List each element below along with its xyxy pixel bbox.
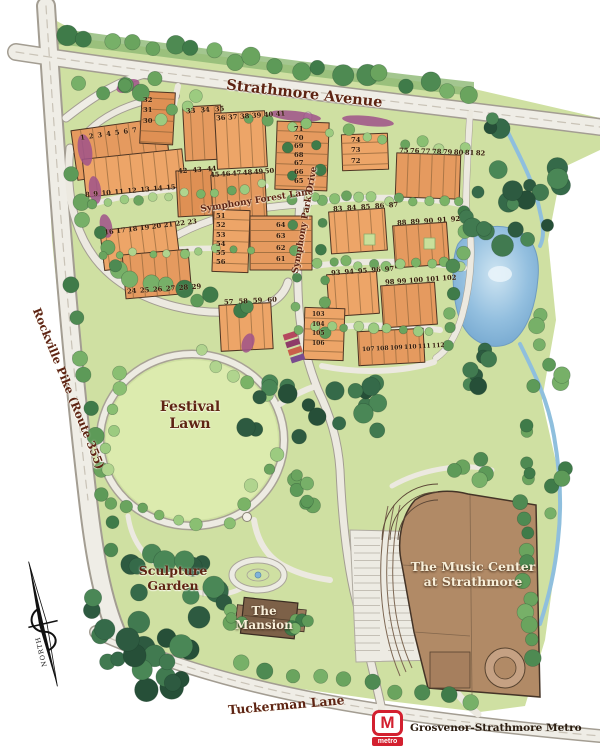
lot-number: 104 bbox=[312, 322, 325, 328]
lot-number: 20 bbox=[151, 223, 161, 231]
lot-number: 93 bbox=[331, 270, 341, 277]
lot-number: 71 bbox=[294, 126, 303, 133]
lot-number: 101 bbox=[425, 276, 440, 284]
lot-number: 7 bbox=[132, 127, 138, 134]
lot-group-51-56: 515253545556 bbox=[216, 213, 225, 266]
metro-logo-word: metro bbox=[372, 737, 403, 746]
label-line: Mansion bbox=[214, 618, 314, 632]
lot-number: 12 bbox=[127, 187, 137, 195]
lot-number: 11 bbox=[114, 189, 124, 197]
lot-number: 62 bbox=[276, 245, 285, 252]
lot-number: 61 bbox=[276, 256, 285, 263]
lot-group-65-71: 71706968676665 bbox=[294, 126, 303, 184]
lot-number: 26 bbox=[153, 286, 163, 293]
site-plan-map: Strathmore Avenue Rockville Pike (Route … bbox=[0, 0, 600, 753]
lot-number: 81 bbox=[465, 150, 475, 157]
lot-number: 109 bbox=[390, 345, 403, 352]
lot-number: 33 bbox=[186, 108, 196, 115]
lot-group-103-106: 103104105106 bbox=[312, 312, 325, 347]
lot-number: 19 bbox=[140, 224, 150, 232]
lot-number: 65 bbox=[294, 178, 303, 185]
metro-station-label: Grosvenor-Strathmore Metro bbox=[410, 722, 582, 734]
lot-number: 48 bbox=[243, 169, 253, 176]
lot-number: 57 bbox=[224, 299, 234, 306]
lot-number: 15 bbox=[166, 184, 176, 192]
lot-number: 1 bbox=[80, 134, 86, 141]
sculpture-garden-label: Sculpture Garden bbox=[118, 564, 228, 594]
lot-number: 112 bbox=[432, 343, 445, 350]
lot-number: 76 bbox=[410, 148, 420, 155]
lot-number: 99 bbox=[397, 278, 407, 285]
lot-number: 58 bbox=[238, 298, 248, 305]
festival-lawn-label: Festival Lawn bbox=[140, 399, 240, 432]
lot-number: 111 bbox=[418, 344, 431, 351]
lot-number: 94 bbox=[344, 269, 354, 276]
lot-number: 100 bbox=[409, 277, 424, 285]
lot-number: 34 bbox=[200, 107, 210, 114]
lot-number: 16 bbox=[104, 229, 114, 237]
lot-number: 87 bbox=[389, 202, 399, 209]
lot-number: 8 bbox=[85, 192, 90, 199]
lot-number: 50 bbox=[265, 168, 275, 175]
lot-number: 77 bbox=[421, 148, 431, 155]
lot-number: 37 bbox=[228, 114, 238, 121]
lot-number: 88 bbox=[397, 220, 407, 227]
lot-number: 18 bbox=[128, 226, 138, 234]
lot-number: 75 bbox=[399, 147, 409, 154]
lot-number: 52 bbox=[216, 222, 225, 229]
lot-number: 38 bbox=[240, 113, 250, 120]
site-plan-illustration bbox=[0, 0, 600, 753]
lot-number: 89 bbox=[410, 219, 420, 226]
lot-number: 80 bbox=[454, 149, 464, 156]
lot-number: 40 bbox=[264, 111, 274, 118]
lot-number: 36 bbox=[216, 115, 226, 122]
lot-number: 21 bbox=[163, 221, 173, 229]
lot-group-61-64: 64636261 bbox=[276, 222, 285, 263]
lot-number: 56 bbox=[216, 259, 225, 266]
lot-number: 9 bbox=[93, 191, 98, 198]
lot-number: 83 bbox=[333, 206, 343, 213]
lot-number: 96 bbox=[371, 267, 381, 274]
lot-number: 4 bbox=[106, 131, 112, 138]
lot-number: 66 bbox=[294, 169, 303, 176]
lot-number: 70 bbox=[294, 135, 303, 142]
lot-number: 41 bbox=[276, 111, 286, 118]
lot-number: 91 bbox=[437, 217, 447, 224]
lot-number: 27 bbox=[166, 285, 176, 292]
lot-number: 49 bbox=[254, 169, 264, 176]
lot-number: 90 bbox=[424, 218, 434, 225]
lot-number: 45 bbox=[210, 172, 220, 179]
lot-number: 13 bbox=[140, 186, 150, 194]
lot-number: 25 bbox=[140, 287, 150, 294]
lot-number: 23 bbox=[187, 218, 197, 226]
lot-number: 43 bbox=[192, 167, 202, 174]
lot-number: 64 bbox=[276, 222, 285, 229]
label-line: Sculpture bbox=[118, 564, 228, 579]
lot-number: 63 bbox=[276, 233, 285, 240]
lot-number: 17 bbox=[116, 227, 126, 235]
lot-number: 95 bbox=[358, 268, 368, 275]
lot-number: 97 bbox=[385, 266, 395, 273]
lot-number: 31 bbox=[143, 107, 152, 114]
lot-number: 47 bbox=[232, 170, 242, 177]
lot-number: 79 bbox=[443, 149, 453, 156]
label-line: Lawn bbox=[140, 416, 240, 433]
lot-number: 102 bbox=[442, 275, 457, 283]
north-arrow-icon: NORTH bbox=[8, 554, 78, 694]
lot-number: 92 bbox=[451, 216, 461, 223]
lot-number: 68 bbox=[294, 152, 303, 159]
lot-number: 32 bbox=[143, 97, 152, 104]
lot-number: 35 bbox=[215, 106, 225, 113]
metro-m-icon: M bbox=[372, 710, 403, 736]
lot-number: 107 bbox=[362, 347, 375, 354]
lot-number: 103 bbox=[312, 312, 325, 318]
lot-number: 10 bbox=[101, 190, 111, 198]
lot-number: 22 bbox=[175, 220, 185, 228]
lot-number: 84 bbox=[347, 205, 357, 212]
lot-number: 29 bbox=[192, 283, 202, 290]
label-line: at Strathmore bbox=[398, 575, 548, 590]
lot-number: 67 bbox=[294, 160, 303, 167]
lot-number: 28 bbox=[179, 284, 189, 291]
lot-number: 85 bbox=[361, 204, 371, 211]
lot-number: 54 bbox=[216, 241, 225, 248]
label-line: Festival bbox=[140, 399, 240, 416]
label-line: The bbox=[214, 604, 314, 618]
lot-number: 42 bbox=[178, 168, 188, 175]
metro-station-marker: M metro Grosvenor-Strathmore Metro bbox=[372, 710, 582, 746]
lot-number: 46 bbox=[221, 171, 231, 178]
lot-number: 110 bbox=[404, 344, 417, 351]
lot-number: 74 bbox=[351, 137, 360, 144]
lot-number: 30 bbox=[143, 118, 152, 125]
lot-number: 69 bbox=[294, 143, 303, 150]
lot-number: 3 bbox=[97, 132, 103, 139]
lot-number: 82 bbox=[476, 150, 486, 157]
lot-number: 78 bbox=[432, 149, 442, 156]
mansion-label: The Mansion bbox=[214, 604, 314, 632]
lot-number: 5 bbox=[114, 129, 120, 136]
lot-number: 72 bbox=[351, 158, 360, 165]
lot-number: 53 bbox=[216, 232, 225, 239]
lot-number: 39 bbox=[252, 112, 262, 119]
lot-number: 24 bbox=[127, 288, 137, 295]
lot-number: 105 bbox=[312, 331, 325, 337]
lot-number: 108 bbox=[376, 346, 389, 353]
lot-number: 60 bbox=[267, 297, 277, 304]
lot-number: 73 bbox=[351, 147, 360, 154]
lot-number: 14 bbox=[153, 185, 163, 193]
lot-number: 55 bbox=[216, 250, 225, 257]
lot-number: 51 bbox=[216, 213, 225, 220]
metro-logo-icon: M metro bbox=[372, 710, 403, 746]
lot-number: 86 bbox=[375, 203, 385, 210]
label-line: The Music Center bbox=[398, 560, 548, 575]
lot-number: 2 bbox=[88, 133, 94, 140]
label-line: Garden bbox=[118, 579, 228, 594]
lot-number: 6 bbox=[123, 128, 129, 135]
lot-number: 106 bbox=[312, 341, 325, 347]
lot-group-72-74: 747372 bbox=[351, 137, 360, 164]
gazebo bbox=[243, 513, 252, 522]
lot-group-30-32: 323130 bbox=[143, 97, 152, 124]
lot-number: 59 bbox=[253, 297, 263, 304]
music-center-label: The Music Center at Strathmore bbox=[398, 560, 548, 590]
lot-number: 98 bbox=[385, 279, 395, 286]
